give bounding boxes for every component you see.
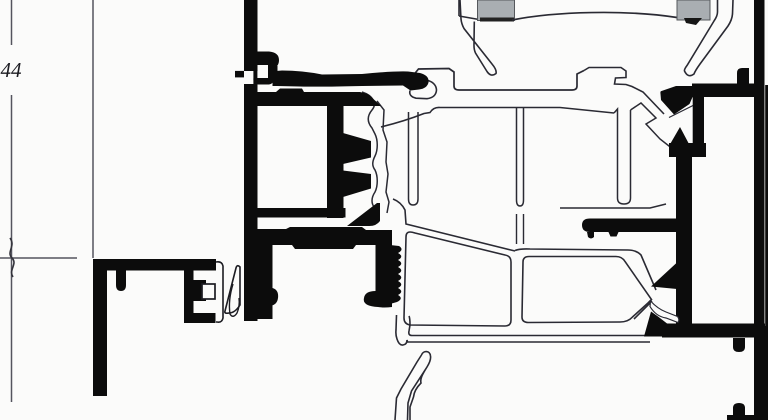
svg-text:44: 44 bbox=[1, 58, 23, 82]
